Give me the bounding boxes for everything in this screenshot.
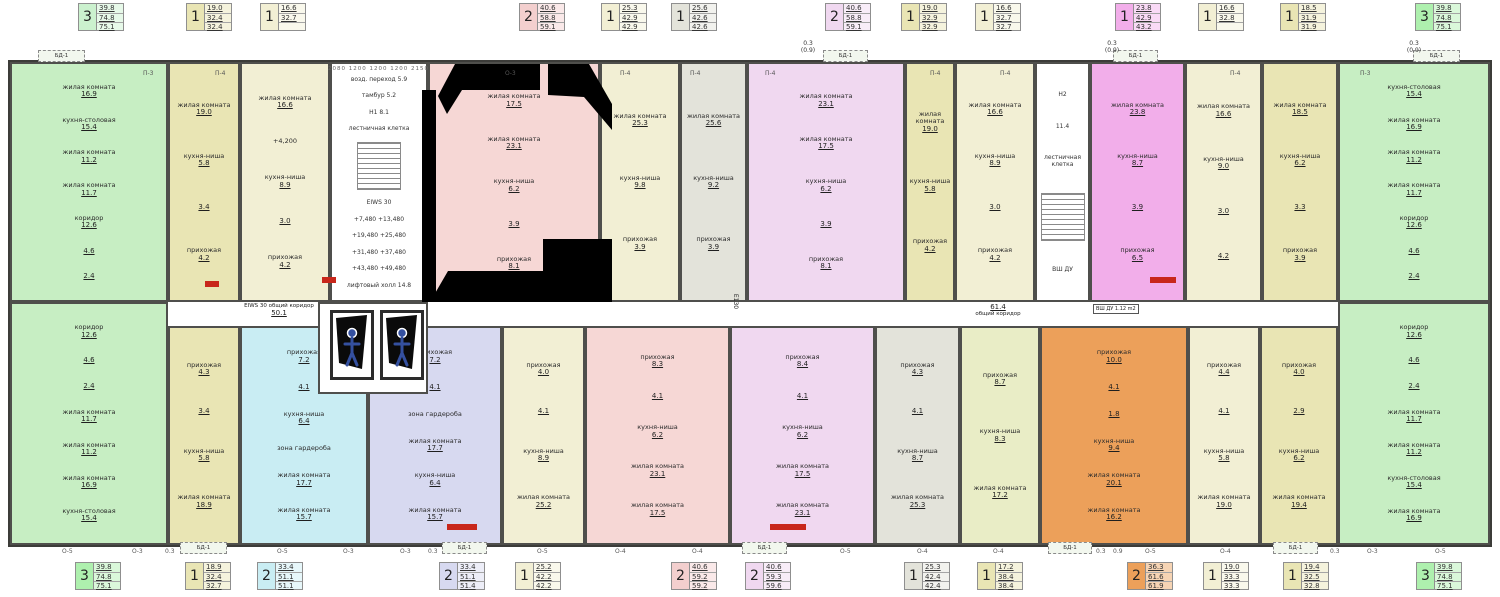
room-label: прихожая4.4 xyxy=(1207,362,1241,377)
badge-area-value: 19.0 xyxy=(205,4,231,14)
badge-area-value: 32.9 xyxy=(920,14,946,24)
badge-area-value: 42.6 xyxy=(690,14,716,24)
staircase-icon xyxy=(1041,193,1085,241)
room-label: прихожая8.3 xyxy=(640,354,674,369)
room-label: 3.0 xyxy=(1218,208,1229,216)
apartment-summary-badge[interactable]: 119.432.532.8 xyxy=(1283,562,1329,590)
axis-label: О-5 xyxy=(277,548,288,555)
room-label: зона гардероба xyxy=(277,445,331,453)
room-label: жилая комната19.0 xyxy=(177,102,230,117)
offset-marker: 0.3(0.9) xyxy=(1399,40,1429,54)
apartment-A-03[interactable]: жилая комната16.6+4,200кухня-ниша8.93.0п… xyxy=(240,62,330,302)
badge-area-value: 16.6 xyxy=(1217,4,1243,14)
core-label: тамбур 5.2 xyxy=(362,92,396,99)
room-label: прихожая8.1 xyxy=(809,256,843,271)
room-label: 4.1 xyxy=(298,384,309,392)
axis-label: О-4 xyxy=(917,548,928,555)
badge-areas: 25.642.642.6 xyxy=(690,4,716,30)
apartment-B-13[interactable]: коридор12.64.62.4жилая комната11.7жилая … xyxy=(1338,302,1490,545)
badge-area-value: 39.8 xyxy=(1435,563,1461,573)
room-label: прихожая3.9 xyxy=(696,236,730,251)
badge-area-value: 42.2 xyxy=(534,582,560,591)
apartment-A-02[interactable]: жилая комната19.0кухня-ниша5.83.4прихожа… xyxy=(168,62,240,302)
apartment-summary-badge[interactable]: 240.658.859.1 xyxy=(825,3,871,31)
badge-area-value: 17.2 xyxy=(996,563,1022,573)
badge-room-count: 3 xyxy=(1417,563,1435,589)
apartment-summary-badge[interactable]: 123.842.943.2 xyxy=(1115,3,1161,31)
room-label: 4.1 xyxy=(652,393,663,401)
core-H1: возд. переход 5.9тамбур 5.2H1 8.1лестнич… xyxy=(330,62,428,302)
badge-area-value xyxy=(1217,23,1243,30)
elevator-icon xyxy=(380,310,424,380)
room-label: зона гардероба xyxy=(408,411,462,419)
room-label: +4,200 xyxy=(273,138,297,146)
badge-area-value: 31.9 xyxy=(1299,23,1325,32)
apartment-A-12[interactable]: жилая комната18.5кухня-ниша6.23.3прихожа… xyxy=(1262,62,1338,302)
apartment-summary-badge[interactable]: 119.032.932.9 xyxy=(901,3,947,31)
axis-label: О-5 xyxy=(1145,548,1156,555)
badge-area-value: 25.6 xyxy=(690,4,716,14)
apartment-A-13[interactable]: кухня-столовая15.4жилая комната16.9жилая… xyxy=(1338,62,1490,302)
axis-label: О-3 xyxy=(132,548,143,555)
axis-label: П-4 xyxy=(1000,70,1011,77)
room-label: жилая комната16.6 xyxy=(1197,103,1250,118)
room-label: 4.1 xyxy=(797,393,808,401)
core-label: +43,480 +49,480 xyxy=(352,265,406,272)
balcony: БД-1 xyxy=(823,50,868,62)
room-label: 1.8 xyxy=(1108,411,1119,419)
room-label: 4.6 xyxy=(1408,357,1419,365)
apartment-A-09[interactable]: жилая комната16.6кухня-ниша8.93.0прихожа… xyxy=(955,62,1035,302)
room-label: прихожая8.7 xyxy=(983,372,1017,387)
room-label: прихожая4.0 xyxy=(526,362,560,377)
badge-room-count: 2 xyxy=(520,4,538,30)
core-label: +7,480 +13,480 xyxy=(354,216,404,223)
apartment-summary-badge[interactable]: 240.658.859.1 xyxy=(519,3,565,31)
badge-area-value: 42.4 xyxy=(923,573,949,583)
badge-area-value: 39.8 xyxy=(1434,4,1460,14)
core-H2: H211.4лестничная клеткаВШ ДУ xyxy=(1035,62,1090,302)
axis-label: 0.3 xyxy=(165,548,175,555)
room-label: жилая комната18.9 xyxy=(177,494,230,509)
badge-area-value: 33.3 xyxy=(1222,582,1248,591)
badge-room-count: 1 xyxy=(1281,4,1299,30)
badge-area-value: 18.5 xyxy=(1299,4,1325,14)
room-label: коридор12.6 xyxy=(75,324,104,339)
apartment-B-06[interactable]: прихожая8.34.1кухня-ниша6.2жилая комната… xyxy=(585,326,730,545)
axis-label: О-3 xyxy=(400,548,411,555)
apartment-summary-badge[interactable]: 125.342.942.9 xyxy=(601,3,647,31)
apartment-B-07[interactable]: прихожая8.44.1кухня-ниша6.2жилая комната… xyxy=(730,326,875,545)
fire-hydrant-mark xyxy=(205,281,219,287)
vent-shaft-label: ВШ ДУ 1.12 m2 xyxy=(1093,304,1139,314)
room-label: жилая комната23.1 xyxy=(631,463,684,478)
offset-marker: 0.3(0.9) xyxy=(1097,40,1127,54)
badge-area-value: 40.6 xyxy=(538,4,564,14)
badge-room-count: 2 xyxy=(672,563,690,589)
badge-areas: 33.451.151.4 xyxy=(458,563,484,589)
badge-area-value: 74.8 xyxy=(1435,573,1461,583)
room-label: жилая комната18.5 xyxy=(1273,102,1326,117)
badge-area-value: 31.9 xyxy=(1299,14,1325,24)
badge-area-value: 39.8 xyxy=(94,563,120,573)
room-label: прихожая3.9 xyxy=(623,236,657,251)
room-label: прихожая3.9 xyxy=(1283,247,1317,262)
apartment-A-04[interactable]: жилая комната17.5жилая комната23.1кухня-… xyxy=(428,62,600,302)
room-label: 4.6 xyxy=(83,248,94,256)
room-label: жилая комната17.7 xyxy=(408,438,461,453)
room-label: жилая комната11.7 xyxy=(62,182,115,197)
dimension-string: 2080 1200 1200 1200 2150 xyxy=(328,66,488,72)
fire-hydrant-mark xyxy=(322,277,336,283)
badge-area-value: 19.0 xyxy=(1222,563,1248,573)
room-label: жилая комната15.7 xyxy=(277,507,330,522)
badge-area-value xyxy=(279,23,305,30)
badge-area-value: 59.2 xyxy=(690,573,716,583)
badge-room-count: 1 xyxy=(905,563,923,589)
badge-area-value: 19.0 xyxy=(920,4,946,14)
room-label: кухня-ниша5.8 xyxy=(184,153,225,168)
room-label: 3.4 xyxy=(198,408,209,416)
badge-area-value: 16.6 xyxy=(279,4,305,14)
core-label: лестничная клетка xyxy=(349,125,410,132)
room-label: 4.1 xyxy=(1218,408,1229,416)
room-label: 3.0 xyxy=(279,218,290,226)
apartment-summary-badge[interactable]: 236.361.661.9 xyxy=(1127,562,1173,590)
apartment-B-05[interactable]: прихожая4.04.1кухня-ниша8.9жилая комната… xyxy=(502,326,585,545)
room-label: прихожая6.5 xyxy=(1120,247,1154,262)
core-label: +31,480 +37,480 xyxy=(352,249,406,256)
room-label: 4.6 xyxy=(83,357,94,365)
badge-area-value: 59.6 xyxy=(764,582,790,591)
apartment-summary-badge[interactable]: 339.874.875.1 xyxy=(1415,3,1461,31)
badge-area-value: 75.1 xyxy=(1435,582,1461,591)
room-label: 4.1 xyxy=(912,408,923,416)
axis-label: О-5 xyxy=(62,548,73,555)
apartment-summary-badge[interactable]: 116.632.7 xyxy=(260,3,306,31)
badge-room-count: 1 xyxy=(976,4,994,30)
room-label: жилая комната15.7 xyxy=(408,507,461,522)
apartment-summary-badge[interactable]: 116.632.8 xyxy=(1198,3,1244,31)
badge-area-value: 32.8 xyxy=(1217,14,1243,24)
room-label: кухня-ниша8.7 xyxy=(897,448,938,463)
badge-area-value: 59.3 xyxy=(764,573,790,583)
badge-area-value: 59.1 xyxy=(538,23,564,32)
apartment-summary-badge[interactable]: 233.451.151.1 xyxy=(257,562,303,590)
badge-areas: 23.842.943.2 xyxy=(1134,4,1160,30)
axis-label: 0.3 xyxy=(428,548,438,555)
badge-room-count: 2 xyxy=(826,4,844,30)
badge-area-value: 32.4 xyxy=(205,14,231,24)
badge-area-value: 61.6 xyxy=(1146,573,1172,583)
apartment-B-12[interactable]: прихожая4.02.9кухня-ниша6.2жилая комната… xyxy=(1260,326,1338,545)
apartment-summary-badge[interactable]: 125.342.442.4 xyxy=(904,562,950,590)
room-label: 2.9 xyxy=(1293,408,1304,416)
badge-area-value: 23.8 xyxy=(1134,4,1160,14)
axis-label: П-3 xyxy=(143,70,154,77)
room-label: кухня-ниша5.8 xyxy=(1204,448,1245,463)
room-label: 2.4 xyxy=(83,383,94,391)
badge-areas: 16.632.732.7 xyxy=(994,4,1020,30)
axis-label: П-4 xyxy=(620,70,631,77)
core-label: H2 xyxy=(1058,91,1066,98)
room-label: 4.1 xyxy=(538,408,549,416)
badge-area-value: 40.6 xyxy=(844,4,870,14)
room-label: жилая комната25.2 xyxy=(517,494,570,509)
badge-area-value: 59.2 xyxy=(690,582,716,591)
badge-areas: 16.632.8 xyxy=(1217,4,1243,30)
staircase-icon xyxy=(357,142,401,190)
riser-label: E130 xyxy=(732,294,739,309)
badge-areas: 19.432.532.8 xyxy=(1302,563,1328,589)
badge-area-value: 32.5 xyxy=(1302,573,1328,583)
room-label: жилая комната16.6 xyxy=(968,102,1021,117)
badge-area-value: 51.1 xyxy=(458,573,484,583)
room-label: прихожая4.3 xyxy=(900,362,934,377)
badge-areas: 18.531.931.9 xyxy=(1299,4,1325,30)
room-label: кухня-ниша8.9 xyxy=(975,153,1016,168)
badge-area-value: 16.6 xyxy=(994,4,1020,14)
balcony: БД-1 xyxy=(742,542,787,554)
axis-label: 0.3 xyxy=(1096,548,1106,555)
badge-area-value: 42.4 xyxy=(923,582,949,591)
common-corridor-left-label: EIWS 30 общий коридор 50.1 xyxy=(238,303,320,317)
room-label: прихожая8.1 xyxy=(497,256,531,271)
apartment-summary-badge[interactable]: 118.932.432.7 xyxy=(185,562,231,590)
axis-label: П-4 xyxy=(215,70,226,77)
badge-room-count: 1 xyxy=(187,4,205,30)
badge-room-count: 1 xyxy=(261,4,279,30)
room-label: жилая комната11.2 xyxy=(1387,442,1440,457)
core-label: H1 8.1 xyxy=(369,109,389,116)
badge-area-value: 42.2 xyxy=(534,573,560,583)
badge-areas: 39.874.875.1 xyxy=(1435,563,1461,589)
room-label: жилая комната11.2 xyxy=(62,149,115,164)
room-label: жилая комната19.4 xyxy=(1272,494,1325,509)
badge-areas: 19.032.432.4 xyxy=(205,4,231,30)
axis-label: О-4 xyxy=(993,548,1004,555)
apartment-summary-badge[interactable]: 339.874.875.1 xyxy=(1416,562,1462,590)
room-label: кухня-ниша8.9 xyxy=(265,174,306,189)
badge-areas: 39.874.875.1 xyxy=(1434,4,1460,30)
apartment-A-05[interactable]: жилая комната25.3кухня-ниша9.8прихожая3.… xyxy=(600,62,680,302)
badge-area-value: 40.6 xyxy=(690,563,716,573)
room-label: прихожая4.2 xyxy=(978,247,1012,262)
room-label: жилая комната16.6 xyxy=(258,95,311,110)
apartment-summary-badge[interactable]: 240.659.359.6 xyxy=(745,562,791,590)
axis-label: О-4 xyxy=(1220,548,1231,555)
room-label: кухня-столовая15.4 xyxy=(1387,84,1440,99)
apartment-summary-badge[interactable]: 339.874.875.1 xyxy=(75,562,121,590)
room-label: кухня-ниша6.2 xyxy=(494,178,535,193)
apartment-summary-badge[interactable]: 117.238.438.4 xyxy=(977,562,1023,590)
axis-label: О-3 xyxy=(1367,548,1378,555)
room-label: 4.6 xyxy=(1408,248,1419,256)
apartment-summary-badge[interactable]: 233.451.151.4 xyxy=(439,562,485,590)
apartment-B-11[interactable]: прихожая4.44.1кухня-ниша5.8жилая комната… xyxy=(1188,326,1260,545)
room-label: жилая комната25.3 xyxy=(891,494,944,509)
badge-area-value: 74.8 xyxy=(94,573,120,583)
core-label: лестничная клетка xyxy=(1039,154,1086,168)
badge-areas: 39.874.875.1 xyxy=(97,4,123,30)
badge-area-value: 32.4 xyxy=(205,23,231,32)
badge-area-value: 75.1 xyxy=(1434,23,1460,32)
apartment-summary-badge[interactable]: 125.242.242.2 xyxy=(515,562,561,590)
axis-label: П-3 xyxy=(1360,70,1371,77)
apartment-summary-badge[interactable]: 119.033.333.3 xyxy=(1203,562,1249,590)
room-label: жилая комната23.1 xyxy=(799,93,852,108)
room-label: 4.2 xyxy=(1218,253,1229,261)
room-label: жилая комната17.2 xyxy=(973,485,1026,500)
badge-areas: 16.632.7 xyxy=(279,4,305,30)
room-label: жилая комната17.5 xyxy=(776,463,829,478)
badge-room-count: 3 xyxy=(76,563,94,589)
badge-area-value: 75.1 xyxy=(97,23,123,32)
room-label: кухня-ниша8.7 xyxy=(1117,153,1158,168)
apartment-B-08[interactable]: прихожая4.34.1кухня-ниша8.7жилая комната… xyxy=(875,326,960,545)
core-label: лифтовый холл 14.8 xyxy=(347,282,411,289)
apartment-summary-badge[interactable]: 125.642.642.6 xyxy=(671,3,717,31)
room-label: 3.4 xyxy=(198,204,209,212)
badge-area-value: 74.8 xyxy=(1434,14,1460,24)
badge-areas: 39.874.875.1 xyxy=(94,563,120,589)
room-label: прихожая4.2 xyxy=(187,247,221,262)
badge-area-value: 42.9 xyxy=(620,23,646,32)
apartment-A-08[interactable]: жилая комната19.0кухня-ниша5.8прихожая4.… xyxy=(905,62,955,302)
axis-label: П-4 xyxy=(765,70,776,77)
badge-room-count: 1 xyxy=(672,4,690,30)
apartment-B-02[interactable]: прихожая4.33.4кухня-ниша5.8жилая комната… xyxy=(168,326,240,545)
room-label: жилая комната25.3 xyxy=(613,113,666,128)
badge-room-count: 1 xyxy=(902,4,920,30)
floor-plan-page: { "colors": { "green":"#c7eec3","green2"… xyxy=(0,0,1500,597)
fire-hydrant-mark xyxy=(447,524,477,530)
balcony: БД-1 xyxy=(38,50,85,62)
badge-area-value: 51.1 xyxy=(276,582,302,591)
balcony: БД-1 xyxy=(1273,542,1318,554)
axis-label: О-3 xyxy=(505,70,516,77)
apartment-A-01[interactable]: жилая комната16.9кухня-столовая15.4жилая… xyxy=(10,62,168,302)
axis-label: 0.3 xyxy=(1330,548,1340,555)
common-corridor-right-label: 61.4 общий коридор xyxy=(965,304,1031,318)
badge-areas: 19.032.932.9 xyxy=(920,4,946,30)
room-label: коридор12.6 xyxy=(1400,215,1429,230)
apartment-A-10[interactable]: жилая комната23.8кухня-ниша8.73.9прихожа… xyxy=(1090,62,1185,302)
room-label: жилая комната11.7 xyxy=(1387,182,1440,197)
room-label: жилая комната20.1 xyxy=(1087,472,1140,487)
room-label: кухня-ниша6.2 xyxy=(637,424,678,439)
room-label: жилая комната16.9 xyxy=(1387,117,1440,132)
badge-area-value: 40.6 xyxy=(764,563,790,573)
apartment-summary-badge[interactable]: 119.032.432.4 xyxy=(186,3,232,31)
badge-room-count: 2 xyxy=(746,563,764,589)
badge-areas: 25.242.242.2 xyxy=(534,563,560,589)
badge-room-count: 1 xyxy=(186,563,204,589)
apartment-B-10[interactable]: прихожая10.04.11.8кухня-ниша9.4жилая ком… xyxy=(1040,326,1188,545)
badge-areas: 17.238.438.4 xyxy=(996,563,1022,589)
elevator-icon xyxy=(330,310,374,380)
room-label: жилая комната11.7 xyxy=(1387,409,1440,424)
apartment-A-07[interactable]: жилая комната23.1жилая комната17.5кухня-… xyxy=(747,62,905,302)
room-label: жилая комната11.2 xyxy=(1387,149,1440,164)
core-label: 11.4 xyxy=(1056,123,1069,130)
room-label: кухня-ниша9.0 xyxy=(1203,156,1244,171)
room-label: прихожая4.3 xyxy=(187,362,221,377)
badge-areas: 25.342.442.4 xyxy=(923,563,949,589)
core-label: ВШ ДУ xyxy=(1052,266,1073,273)
room-label: 4.1 xyxy=(1108,384,1119,392)
room-label: жилая комната17.5 xyxy=(487,93,540,108)
badge-area-value: 42.9 xyxy=(620,14,646,24)
badge-area-value: 42.6 xyxy=(690,23,716,32)
badge-area-value: 33.4 xyxy=(458,563,484,573)
core-label: возд. переход 5.9 xyxy=(351,76,407,83)
room-label: кухня-ниша9.8 xyxy=(620,175,661,190)
room-label: жилая комната16.9 xyxy=(62,475,115,490)
badge-room-count: 1 xyxy=(602,4,620,30)
badge-area-value: 32.7 xyxy=(994,23,1020,32)
room-label: жилая комната11.2 xyxy=(62,442,115,457)
axis-label: О-3 xyxy=(343,548,354,555)
room-label: 3.0 xyxy=(989,204,1000,212)
apartment-summary-badge[interactable]: 116.632.732.7 xyxy=(975,3,1021,31)
balcony: БД-1 xyxy=(442,542,487,554)
room-label: жилая комната16.9 xyxy=(62,84,115,99)
badge-room-count: 1 xyxy=(1204,563,1222,589)
room-label: 3.9 xyxy=(820,221,831,229)
apartment-summary-badge[interactable]: 339.874.875.1 xyxy=(78,3,124,31)
apartment-A-11[interactable]: жилая комната16.6кухня-ниша9.03.04.2 xyxy=(1185,62,1262,302)
room-label: кухня-ниша5.8 xyxy=(184,448,225,463)
room-label: кухня-ниша6.2 xyxy=(806,178,847,193)
room-label: кухня-ниша8.3 xyxy=(980,428,1021,443)
badge-area-value: 32.9 xyxy=(920,23,946,32)
room-label: прихожая4.0 xyxy=(1282,362,1316,377)
badge-room-count: 2 xyxy=(1128,563,1146,589)
room-label: кухня-ниша9.2 xyxy=(693,175,734,190)
apartment-A-06[interactable]: жилая комната25.6кухня-ниша9.2прихожая3.… xyxy=(680,62,747,302)
room-label: жилая комната16.9 xyxy=(1387,508,1440,523)
room-label: кухня-столовая15.4 xyxy=(1387,475,1440,490)
axis-label: О-4 xyxy=(692,548,703,555)
badge-area-value: 74.8 xyxy=(97,14,123,24)
badge-areas: 18.932.432.7 xyxy=(204,563,230,589)
badge-area-value: 51.4 xyxy=(458,582,484,591)
apartment-B-09[interactable]: прихожая8.7кухня-ниша8.3жилая комната17.… xyxy=(960,326,1040,545)
room-label: жилая комната17.7 xyxy=(277,472,330,487)
badge-areas: 40.659.359.6 xyxy=(764,563,790,589)
axis-label: П-4 xyxy=(1230,70,1241,77)
room-label: кухня-ниша6.2 xyxy=(1279,448,1320,463)
badge-room-count: 1 xyxy=(1116,4,1134,30)
badge-room-count: 1 xyxy=(516,563,534,589)
room-label: прихожая8.4 xyxy=(785,354,819,369)
badge-areas: 25.342.942.9 xyxy=(620,4,646,30)
room-label: кухня-ниша6.2 xyxy=(782,424,823,439)
badge-area-value: 32.8 xyxy=(1302,582,1328,591)
badge-room-count: 1 xyxy=(978,563,996,589)
badge-room-count: 1 xyxy=(1284,563,1302,589)
badge-area-value: 58.8 xyxy=(844,14,870,24)
badge-area-value: 32.4 xyxy=(204,573,230,583)
room-label: кухня-ниша5.8 xyxy=(910,178,951,193)
apartment-summary-badge[interactable]: 118.531.931.9 xyxy=(1280,3,1326,31)
apartment-B-01[interactable]: коридор12.64.62.4жилая комната11.7жилая … xyxy=(10,302,168,545)
room-label: кухня-столовая15.4 xyxy=(62,508,115,523)
room-label: 3.9 xyxy=(1132,204,1143,212)
apartment-summary-badge[interactable]: 240.659.259.2 xyxy=(671,562,717,590)
badge-area-value: 25.2 xyxy=(534,563,560,573)
